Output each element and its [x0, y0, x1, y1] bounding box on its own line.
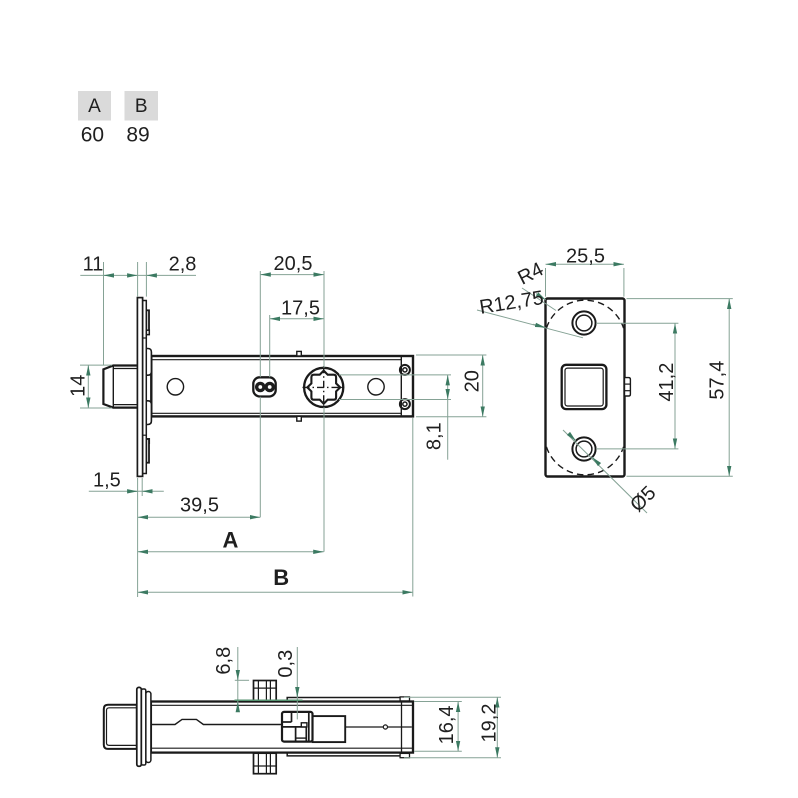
svg-text:0,3: 0,3 — [275, 650, 297, 678]
svg-text:14: 14 — [68, 375, 90, 397]
svg-text:20: 20 — [462, 370, 484, 392]
svg-text:25,5: 25,5 — [566, 245, 605, 267]
svg-text:39,5: 39,5 — [180, 495, 219, 517]
svg-text:B: B — [273, 565, 289, 590]
svg-text:20,5: 20,5 — [274, 253, 313, 275]
svg-text:57,4: 57,4 — [707, 361, 729, 400]
svg-text:2,8: 2,8 — [169, 254, 197, 276]
svg-text:19,2: 19,2 — [478, 704, 500, 743]
svg-text:11: 11 — [83, 254, 104, 276]
svg-text:A: A — [223, 528, 239, 553]
svg-text:16,4: 16,4 — [436, 705, 458, 744]
svg-text:60: 60 — [81, 124, 104, 147]
svg-text:B: B — [135, 96, 148, 117]
svg-text:A: A — [88, 96, 101, 117]
svg-text:41,2: 41,2 — [656, 363, 678, 402]
svg-text:17,5: 17,5 — [281, 298, 320, 320]
svg-text:89: 89 — [126, 124, 149, 147]
svg-text:8,1: 8,1 — [424, 422, 446, 450]
svg-text:6,8: 6,8 — [213, 647, 235, 675]
svg-text:1,5: 1,5 — [93, 470, 121, 492]
